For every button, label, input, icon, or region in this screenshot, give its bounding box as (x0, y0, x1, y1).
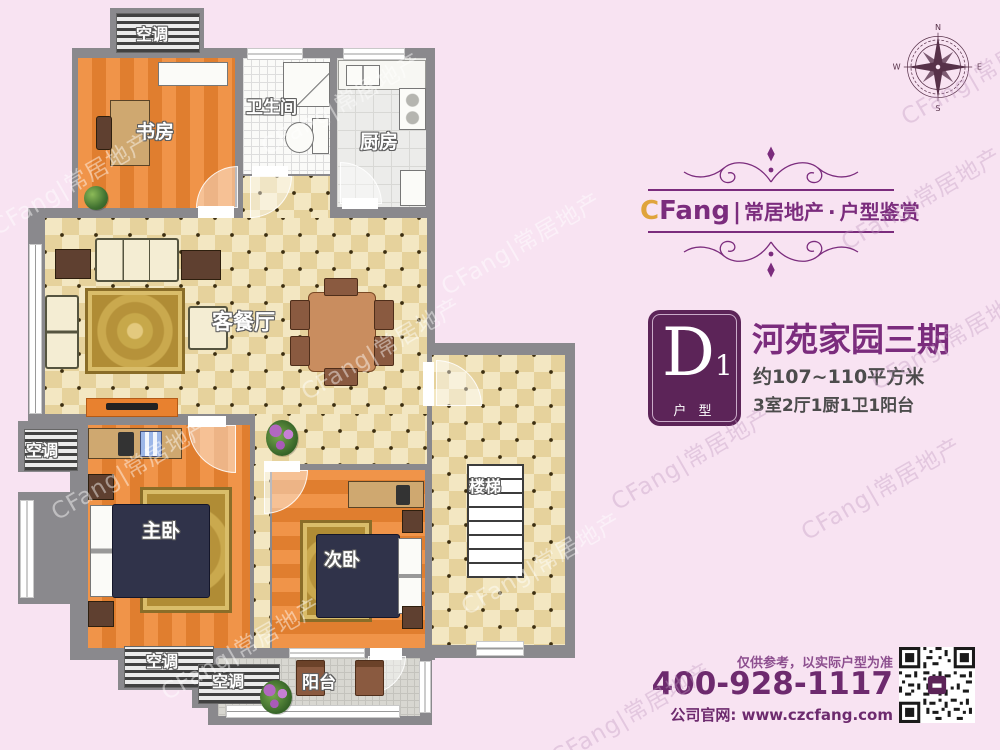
end-table-left (55, 249, 91, 279)
room-label-second: 次卧 (324, 546, 360, 572)
unit-rooms-summary: 3室2厅1厨1卫1阳台 (753, 391, 914, 416)
dining-table (308, 292, 376, 372)
compass-icon: N S E W (893, 22, 983, 112)
master-nightstand-2 (88, 601, 114, 627)
svg-text:S: S (935, 103, 940, 112)
balcony-chair-2 (355, 660, 384, 696)
stove (399, 88, 426, 130)
window-master-left (20, 500, 34, 598)
balcony-plant (260, 680, 292, 714)
kitchen-appliance (400, 170, 426, 206)
master-bed-pillows (90, 505, 114, 597)
watermark: CFang|常居地产 (794, 427, 967, 547)
second-nightstand-2 (402, 606, 423, 629)
dining-chair-bottom (324, 368, 358, 386)
logo-series: 户型鉴赏 (840, 200, 920, 224)
dining-chair-l2 (290, 336, 310, 366)
logo-rule-top (648, 189, 894, 191)
sofa-two-seat (45, 295, 79, 369)
window-balcony-right (419, 661, 431, 713)
kitchen-sink (346, 65, 380, 86)
dining-chair-top (324, 278, 358, 296)
dining-chair-r2 (374, 336, 394, 366)
room-label-kitchen: 厨房 (360, 127, 398, 154)
door-bathroom (252, 166, 288, 176)
logo-fang: Fang (659, 196, 730, 226)
room-label-ac-left: 空调 (26, 437, 58, 461)
unit-badge-letter: D1 (662, 314, 733, 391)
dining-chair-l1 (290, 300, 310, 330)
study-chair (96, 116, 112, 150)
door-entry (423, 362, 434, 406)
living-rug (85, 288, 185, 374)
unit-area: 约107~110平方米 (753, 362, 924, 389)
toilet-tank (312, 118, 329, 154)
logo-divider: | (730, 200, 744, 225)
unit-badge-number: 1 (715, 349, 733, 382)
window-balcony-bottom (226, 705, 400, 718)
qr-code (899, 647, 975, 723)
toilet-bowl (285, 122, 314, 153)
logo-letter-c: C (640, 196, 659, 226)
master-wardrobe-clothes (118, 432, 134, 456)
window-living-left (29, 244, 42, 414)
room-label-ac-top: 空调 (136, 21, 168, 45)
master-wardrobe-shirt (140, 431, 162, 457)
flourish-bottom-icon (678, 236, 864, 278)
window-kitchen-top (343, 48, 405, 60)
tv (106, 403, 158, 410)
room-label-stairs: 楼梯 (469, 473, 501, 497)
logo-rule-bottom (648, 231, 894, 233)
study-cabinet (158, 62, 228, 86)
website: 公司官网: www.czcfang.com (670, 704, 893, 725)
svg-text:N: N (935, 22, 941, 32)
unit-badge: D1 户 型 (648, 310, 741, 426)
room-label-ac-bottom-1: 空调 (146, 648, 178, 672)
second-bed-pillows (398, 538, 422, 614)
room-label-master: 主卧 (142, 516, 180, 543)
end-table-right (181, 250, 221, 280)
room-label-study: 书房 (136, 117, 174, 144)
floor-plan: 空调 书房 卫生间 厨房 客餐厅 空调 主卧 次卧 楼梯 空调 空调 阳台 (0, 0, 620, 750)
brand-logo: CFang|常居地产·户型鉴赏 (640, 196, 902, 226)
corridor-plant (266, 420, 298, 456)
second-wardrobe (348, 481, 424, 508)
flourish-top-icon (678, 146, 864, 188)
room-label-balcony: 阳台 (302, 668, 336, 693)
room-label-living: 客餐厅 (212, 306, 275, 336)
window-bathroom-top (247, 48, 303, 60)
window-hall-bottom (476, 641, 524, 656)
phone-number: 400-928-1117 (652, 666, 893, 702)
second-nightstand-1 (402, 510, 423, 533)
master-wardrobe (88, 428, 182, 459)
window-second-bottom (289, 648, 365, 658)
floorplan-poster: 空调 书房 卫生间 厨房 客餐厅 空调 主卧 次卧 楼梯 空调 空调 阳台 N … (0, 0, 1000, 750)
project-title: 河苑家园三期 (752, 313, 950, 361)
dining-chair-r1 (374, 300, 394, 330)
second-wardrobe-clothes (396, 485, 410, 505)
master-nightstand-1 (88, 474, 114, 500)
unit-badge-caption: 户 型 (648, 400, 741, 419)
sofa-three-seat (95, 238, 179, 282)
study-plant (84, 186, 108, 210)
svg-text:E: E (977, 62, 982, 72)
svg-text:W: W (893, 62, 901, 72)
logo-middot: · (824, 200, 840, 224)
room-label-bathroom: 卫生间 (246, 93, 297, 118)
room-label-ac-bottom-2: 空调 (212, 668, 244, 692)
logo-company: 常居地产 (744, 200, 824, 224)
